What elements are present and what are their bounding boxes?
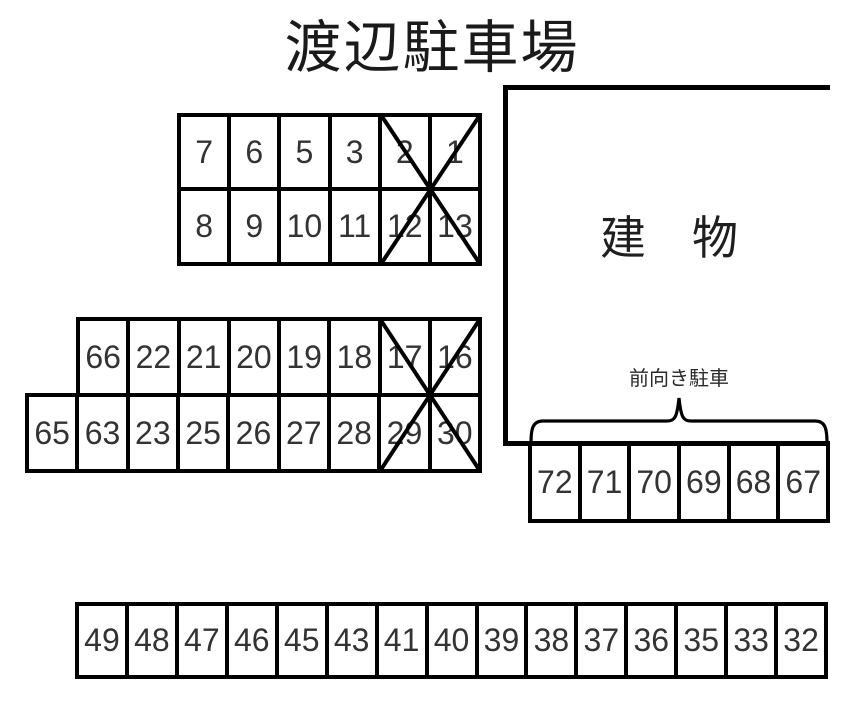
building-label: 建 物 [508,202,830,268]
parking-space: 6 [227,117,277,187]
parking-space: 18 [327,321,377,393]
parking-space: 8 [181,191,227,262]
parking-space: 5 [277,117,327,187]
parking-space: 39 [475,606,525,675]
parking-space: 20 [227,321,277,393]
parking-space: 30 [428,397,478,469]
parking-space: 10 [277,191,327,262]
parking-space: 19 [277,321,327,393]
parking-space: 40 [425,606,475,675]
parking-space: 46 [225,606,275,675]
parking-space: 3 [328,117,378,187]
parking-space: 65 [29,397,75,469]
parking-space: 47 [175,606,225,675]
parking-space: 43 [325,606,375,675]
parking-space: 25 [176,397,226,469]
parking-space: 13 [428,191,478,262]
parking-space: 33 [724,606,774,675]
parking-lot-map: 渡辺駐車場 7 6 5 3 2 1 8 9 10 11 12 13 66 22 … [0,0,864,708]
parking-space: 23 [126,397,176,469]
parking-space: 11 [328,191,378,262]
lot-c-row: 72 71 70 69 68 67 [528,442,830,523]
lot-a-row2: 8 9 10 11 12 13 [177,187,482,266]
parking-space: 26 [226,397,276,469]
parking-space: 1 [428,117,478,187]
parking-space: 48 [125,606,175,675]
parking-space: 36 [624,606,674,675]
parking-space: 72 [532,446,578,519]
parking-space: 7 [181,117,227,187]
building-outline: 建 物 [503,85,830,446]
parking-space: 21 [177,321,227,393]
page-title: 渡辺駐車場 [0,2,864,84]
parking-space: 16 [428,321,478,393]
parking-space: 27 [277,397,327,469]
parking-space: 38 [524,606,574,675]
parking-space: 17 [378,321,428,393]
parking-space: 32 [774,606,824,675]
parking-space: 9 [227,191,277,262]
parking-space: 37 [574,606,624,675]
parking-space: 22 [126,321,176,393]
parking-space: 67 [776,446,826,519]
overbrace-icon [528,395,830,443]
parking-space: 35 [674,606,724,675]
parking-space: 71 [578,446,628,519]
parking-space: 12 [378,191,428,262]
parking-space: 29 [377,397,427,469]
parking-space: 45 [275,606,325,675]
lot-a-row1: 7 6 5 3 2 1 [177,113,482,191]
lot-d-row: 49 48 47 46 45 43 41 40 39 38 37 36 35 3… [75,602,828,679]
parking-space: 63 [75,397,125,469]
parking-space: 68 [727,446,777,519]
parking-space: 49 [79,606,125,675]
parking-space: 70 [627,446,677,519]
parking-space: 2 [378,117,428,187]
parking-space: 66 [80,321,126,393]
parking-space: 28 [327,397,377,469]
parking-space: 41 [375,606,425,675]
parking-space: 69 [677,446,727,519]
lot-b-row1: 66 22 21 20 19 18 17 16 [76,317,482,397]
front-parking-label: 前向き駐車 [528,362,830,391]
lot-b-row2: 65 63 23 25 26 27 28 29 30 [25,393,482,473]
